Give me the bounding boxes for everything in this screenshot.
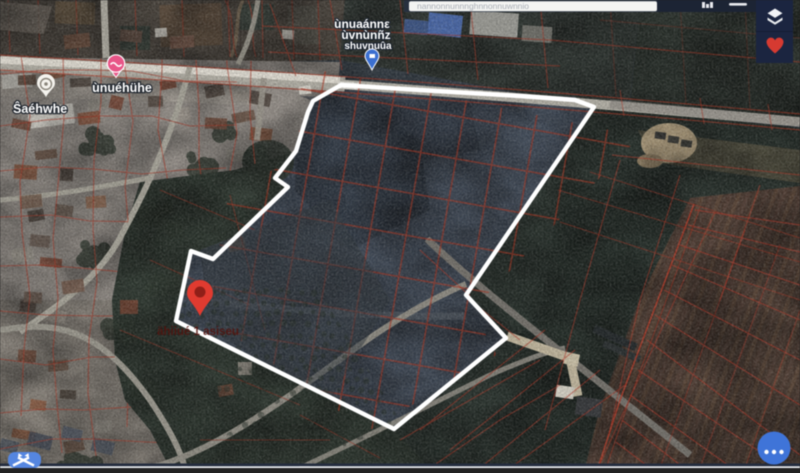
svg-text:Ŝaéhwhe: Ŝaéhwhe — [13, 101, 67, 116]
svg-text:ùnuéhühe: ùnuéhühe — [92, 81, 152, 95]
svg-text:nannonnunnnghnnonnuwnnio: nannonnunnnghnnonnuwnnio — [417, 1, 529, 11]
svg-text:ähiiué 1 asiseu: ähiiué 1 asiseu — [157, 326, 239, 338]
svg-text:ùvnùnñz: ùvnùnñz — [341, 28, 390, 42]
